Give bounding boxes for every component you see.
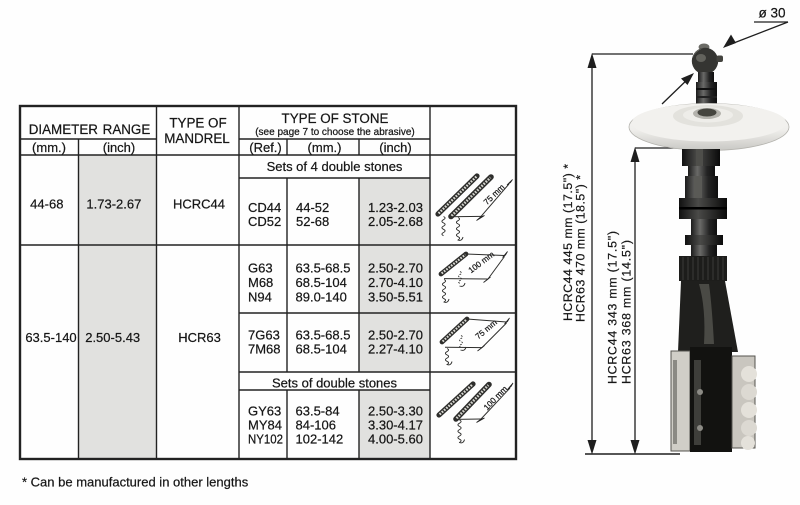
svg-text:NY102: NY102 <box>248 432 283 447</box>
svg-text:Sets of double stones: Sets of double stones <box>272 376 398 391</box>
svg-text:2.27-4.10: 2.27-4.10 <box>368 342 423 357</box>
svg-text:(inch): (inch) <box>379 140 412 155</box>
svg-text:7G63: 7G63 <box>248 328 280 343</box>
svg-text:89.0-140: 89.0-140 <box>296 290 347 305</box>
svg-text:52-68: 52-68 <box>296 214 329 229</box>
svg-text:TYPE OF STONE: TYPE OF STONE <box>282 111 389 126</box>
svg-text:44-68: 44-68 <box>30 197 63 212</box>
svg-text:Sets of 4 double stones: Sets of 4 double stones <box>267 159 403 174</box>
svg-text:2.70-4.10: 2.70-4.10 <box>368 275 423 290</box>
svg-text:4.00-5.60: 4.00-5.60 <box>368 432 423 447</box>
svg-text:(mm.): (mm.) <box>32 140 66 155</box>
svg-text:M68: M68 <box>248 275 273 290</box>
svg-text:68.5-104: 68.5-104 <box>296 275 347 290</box>
svg-text:100 mm: 100 mm <box>466 249 496 275</box>
svg-text:HCR63 368 mm (14.5"): HCR63 368 mm (14.5") <box>620 240 634 384</box>
svg-text:DIAMETER RANGE: DIAMETER RANGE <box>29 122 151 137</box>
svg-text:* Can be manufactured in other: * Can be manufactured in other lengths <box>22 475 249 490</box>
svg-text:(mm.): (mm.) <box>308 140 342 155</box>
svg-text:1.23-2.03: 1.23-2.03 <box>368 200 423 215</box>
svg-text:3.50-5.51: 3.50-5.51 <box>368 290 423 305</box>
svg-text:63.5-84: 63.5-84 <box>296 404 340 419</box>
svg-text:MY84: MY84 <box>248 418 282 433</box>
svg-text:(Ref.): (Ref.) <box>249 140 282 155</box>
svg-text:63.5-68.5: 63.5-68.5 <box>296 261 351 276</box>
svg-text:ø 30: ø 30 <box>758 6 785 21</box>
svg-text:TYPE OF: TYPE OF <box>169 116 226 131</box>
svg-text:2.50-2.70: 2.50-2.70 <box>368 261 423 276</box>
svg-text:HCRC44 343 mm (17.5"): HCRC44 343 mm (17.5") <box>606 231 620 384</box>
svg-text:3.30-4.17: 3.30-4.17 <box>368 418 423 433</box>
svg-text:CD44: CD44 <box>248 200 281 215</box>
svg-text:84-106: 84-106 <box>296 418 336 433</box>
svg-text:HCR63 470 mm (18.5") *: HCR63 470 mm (18.5") * <box>574 175 588 322</box>
svg-text:N94: N94 <box>248 290 272 305</box>
svg-text:2.50-5.43: 2.50-5.43 <box>85 330 140 345</box>
svg-text:63.5-68.5: 63.5-68.5 <box>296 328 351 343</box>
svg-text:GY63: GY63 <box>248 404 281 419</box>
svg-text:(see page 7 to choose the abra: (see page 7 to choose the abrasive) <box>255 127 415 138</box>
svg-text:44-52: 44-52 <box>296 200 329 215</box>
svg-text:63.5-140: 63.5-140 <box>25 330 76 345</box>
svg-text:MANDREL: MANDREL <box>164 131 229 146</box>
svg-text:G63: G63 <box>248 261 273 276</box>
svg-text:102-142: 102-142 <box>296 432 344 447</box>
svg-text:CD52: CD52 <box>248 214 281 229</box>
svg-text:HCR63: HCR63 <box>178 330 221 345</box>
svg-text:2.05-2.68: 2.05-2.68 <box>368 214 423 229</box>
svg-text:2.50-3.30: 2.50-3.30 <box>368 404 423 419</box>
svg-text:68.5-104: 68.5-104 <box>296 342 347 357</box>
svg-text:(inch): (inch) <box>103 140 136 155</box>
svg-text:7M68: 7M68 <box>248 342 281 357</box>
svg-text:1.73-2.67: 1.73-2.67 <box>86 197 141 212</box>
svg-text:2.50-2.70: 2.50-2.70 <box>368 328 423 343</box>
svg-text:HCRC44: HCRC44 <box>173 197 225 212</box>
